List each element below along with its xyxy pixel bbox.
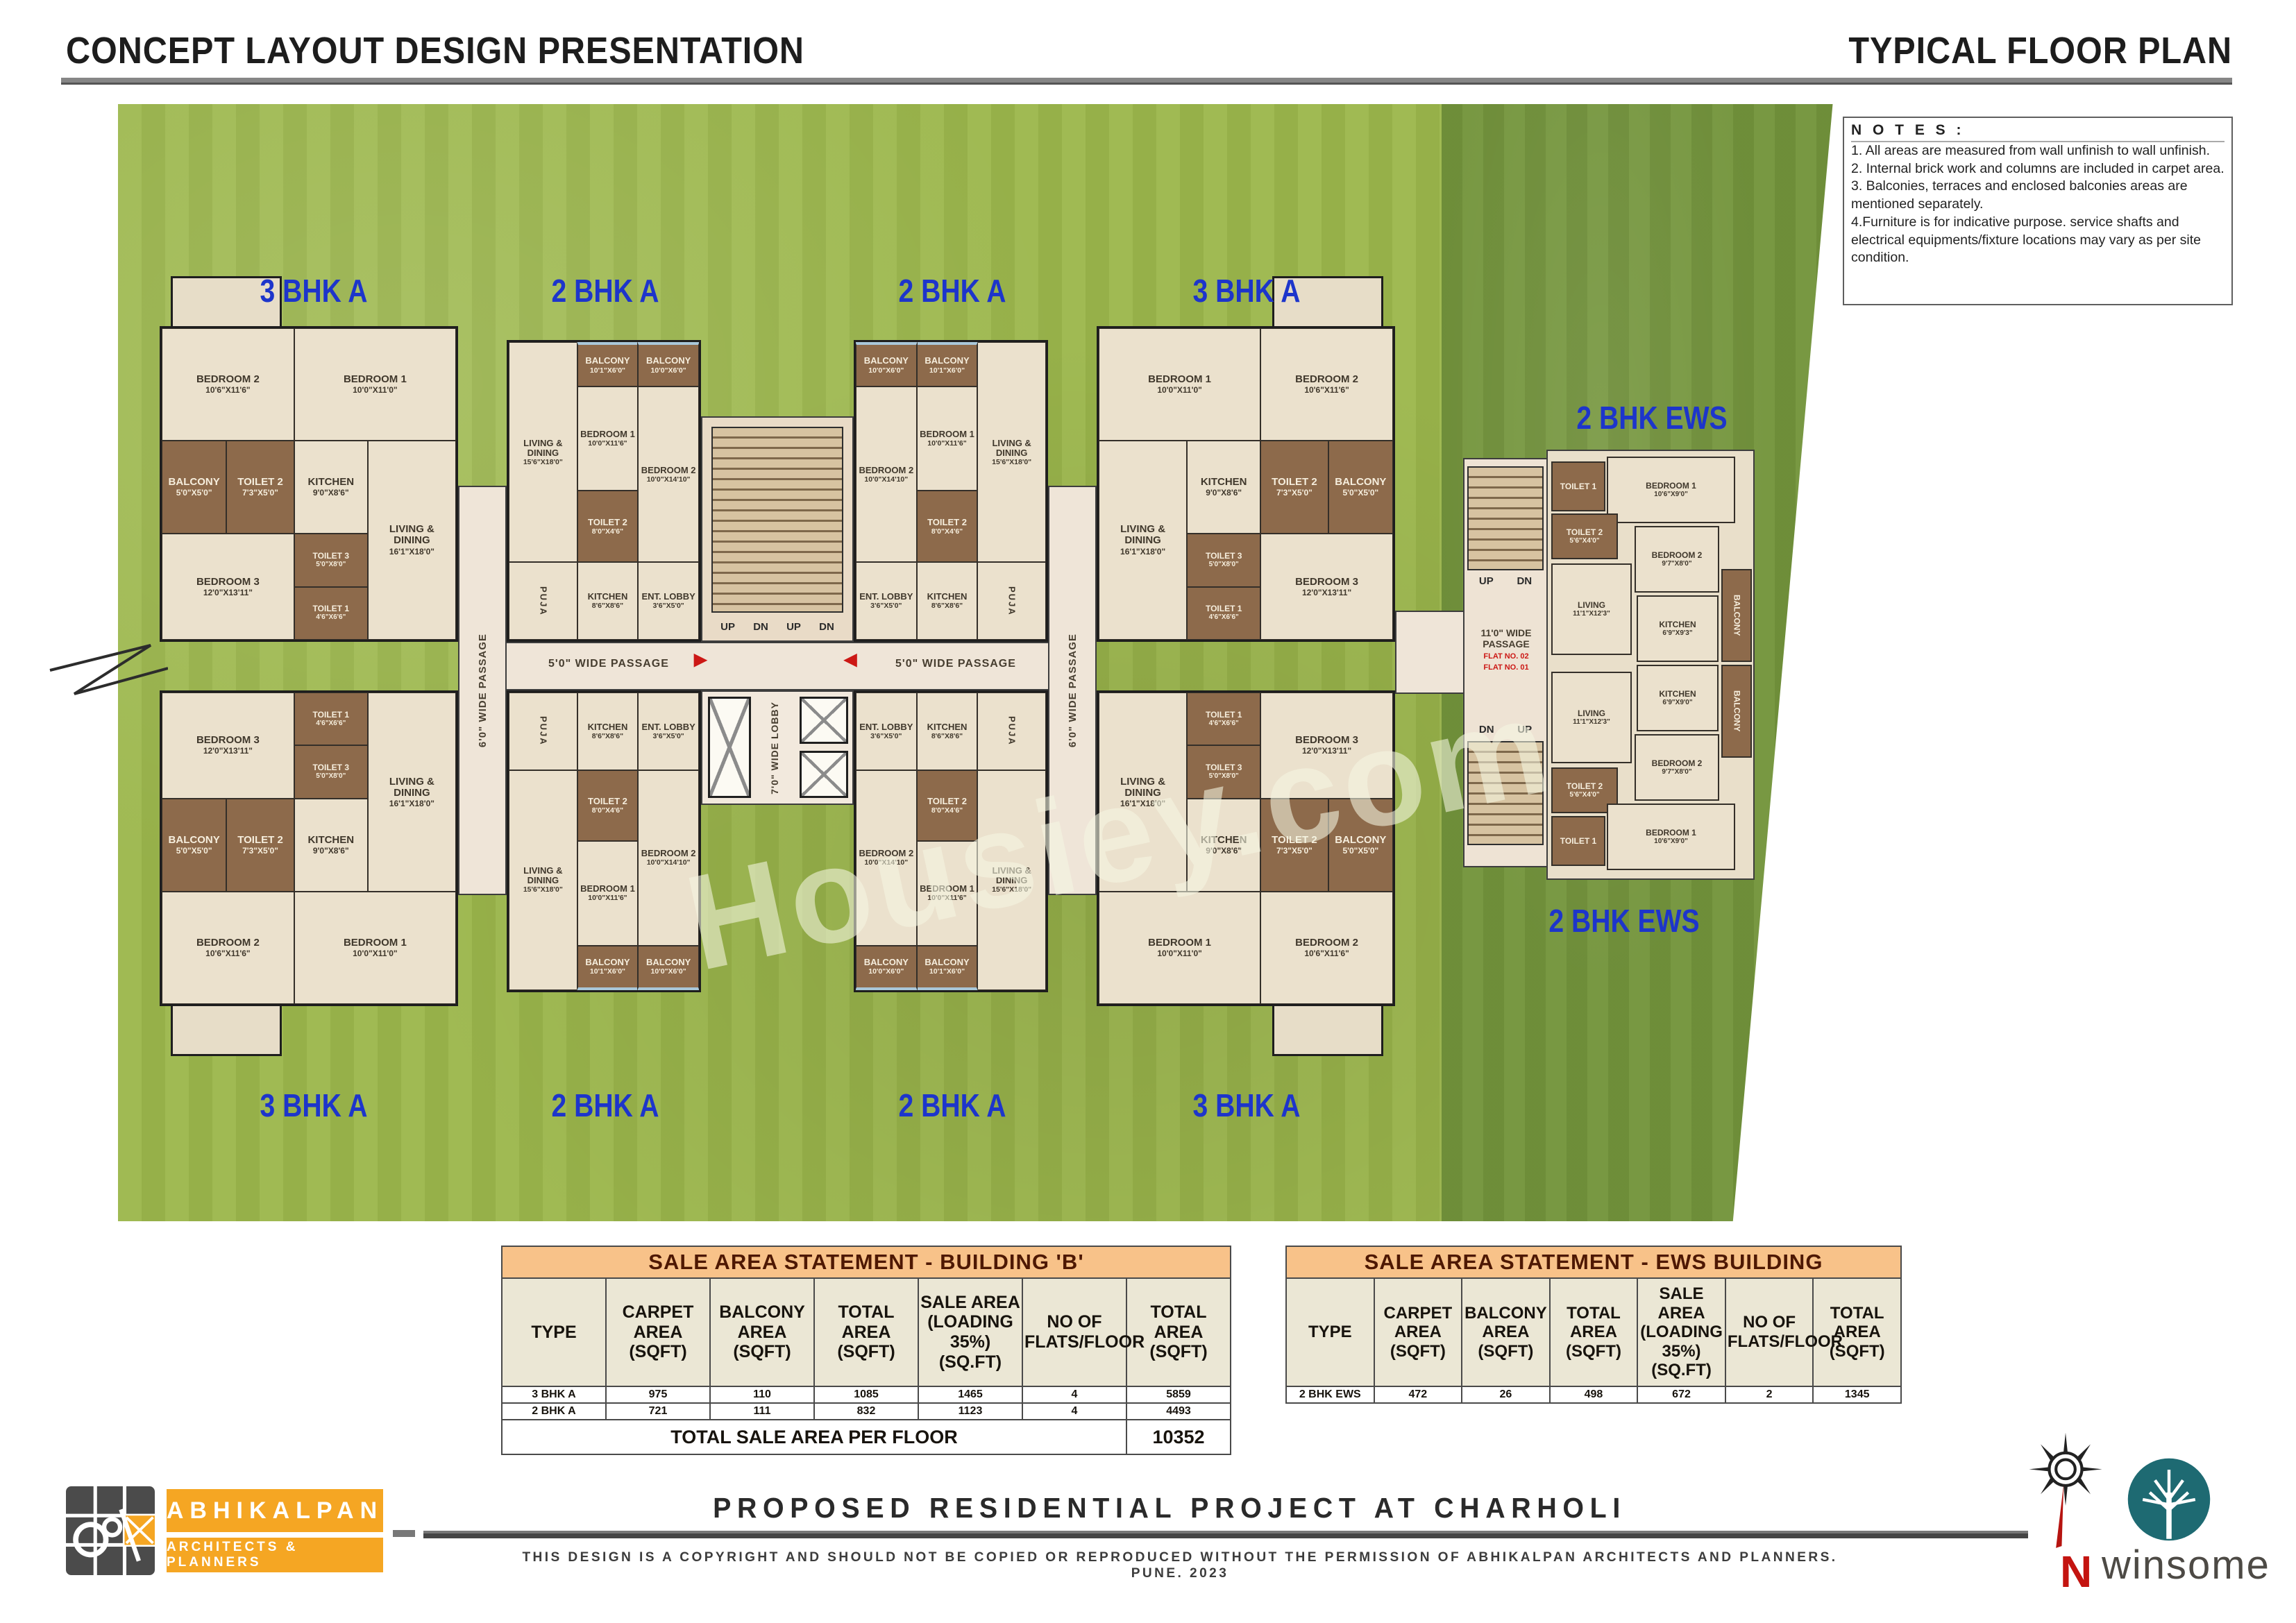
footer-dash <box>393 1530 415 1537</box>
room-label: KITCHEN <box>307 835 354 846</box>
sale-area-table-ews: SALE AREA STATEMENT - EWS BUILDINGTYPECA… <box>1285 1246 1902 1404</box>
room-label: BEDROOM 1 <box>580 430 635 439</box>
room-dimensions: 10'6"X11'6" <box>205 386 250 395</box>
page-title: CONCEPT LAYOUT DESIGN PRESENTATION <box>66 29 804 72</box>
room-dimensions: 8'6"X8'6" <box>931 602 963 610</box>
column-header: TYPE <box>502 1278 606 1386</box>
room-toil2: TOILET 27'3"X5'0" <box>1260 440 1329 535</box>
staircase <box>711 427 843 613</box>
room-label: BEDROOM 1 <box>344 937 407 949</box>
room-label: KITCHEN <box>1201 477 1247 488</box>
unit-type-label: 2 BHK A <box>899 272 1006 309</box>
room-ews-kitchen: KITCHEN6'9"X9'3" <box>1637 595 1719 662</box>
room-dimensions: 10'1"X6'0" <box>929 367 965 375</box>
room-balcB: BALCONY10'0"X6'0" <box>855 945 918 991</box>
room-toil1: TOILET 14'6"X6'6" <box>1186 692 1261 746</box>
unit-3bhk: BEDROOM 210'6"X11'6"BEDROOM 110'0"X11'0"… <box>160 326 458 642</box>
room-label: TOILET 2 <box>237 477 283 488</box>
room-dimensions: 16'1"X18'0" <box>389 547 434 556</box>
table-row: SALE AREA STATEMENT - BUILDING 'B' <box>502 1246 1231 1278</box>
room-label: BEDROOM 1 <box>1148 937 1211 949</box>
room-dimensions: 10'0"X6'0" <box>868 367 904 375</box>
stair-down-label: DN <box>1479 724 1494 736</box>
room-bed2: BEDROOM 210'0"X14'10" <box>855 386 918 563</box>
room-label: PUJA <box>538 586 548 616</box>
room-dimensions: 6'9"X9'0" <box>1662 699 1692 707</box>
sale-area-table: SALE AREA STATEMENT - BUILDING 'B'TYPECA… <box>501 1246 1231 1455</box>
lift-box <box>800 697 848 744</box>
room-ews-bedroom-1: BEDROOM 110'6"X9'0" <box>1607 804 1735 870</box>
room-label: ENT. LOBBY <box>859 722 913 732</box>
winsome-tree-icon <box>2125 1456 2213 1543</box>
room-dimensions: 5'0"X8'0" <box>1209 773 1239 781</box>
room-label: LIVING & DINING <box>979 439 1044 458</box>
room-label: KITCHEN <box>1201 835 1247 846</box>
room-dimensions: 9'7"X8'0" <box>1662 769 1691 776</box>
room-label: PUJA <box>1007 586 1017 616</box>
room-dimensions: 7'3"X5'0" <box>1276 847 1312 856</box>
room-bed2: BEDROOM 210'6"X11'6" <box>1260 891 1394 1005</box>
stair-up-label: UP <box>1479 575 1494 587</box>
room-kitch: KITCHEN8'6"X8'6" <box>577 561 639 640</box>
lift-box <box>800 751 848 798</box>
table-cell: 2 BHK A <box>502 1403 606 1420</box>
room-dimensions: 16'1"X18'0" <box>1120 799 1165 808</box>
unit-3bhk: BEDROOM 210'6"X11'6"BEDROOM 110'0"X11'0"… <box>160 690 458 1006</box>
room-kitch: KITCHEN8'6"X8'6" <box>577 692 639 771</box>
corner-bedroom-bump <box>1272 1002 1383 1056</box>
footer-divider <box>423 1531 2028 1538</box>
room-dimensions: 8'6"X8'6" <box>592 733 623 740</box>
room-bed3: BEDROOM 312'0"X13'11" <box>1260 692 1394 799</box>
unit-type-label: 3 BHK A <box>1193 272 1301 309</box>
room-dimensions: 9'7"X8'0" <box>1662 561 1691 568</box>
room-living: LIVING & DINING15'6"X18'0" <box>508 341 578 563</box>
column-header: BALCONY AREA (SQFT) <box>710 1278 814 1386</box>
room-puja: PUJA <box>508 692 578 771</box>
room-dimensions: 15'6"X18'0" <box>992 459 1031 466</box>
room-bed1: BEDROOM 110'0"X11'6" <box>577 840 639 946</box>
room-label: BALCONY <box>1732 595 1741 636</box>
room-bed2: BEDROOM 210'0"X14'10" <box>637 386 700 563</box>
room-toil1: TOILET 14'6"X6'6" <box>1186 586 1261 640</box>
room-label: LIVING & DINING <box>979 866 1044 885</box>
room-toil3: TOILET 35'0"X8'0" <box>294 533 369 587</box>
corner-bedroom-bump <box>171 1002 282 1056</box>
unit-3bhk: BEDROOM 210'6"X11'6"BEDROOM 110'0"X11'0"… <box>1097 690 1395 1006</box>
room-label: LIVING & DINING <box>1101 776 1185 799</box>
room-puja: PUJA <box>977 561 1047 640</box>
room-label: BALCONY <box>169 477 220 488</box>
room-label: TOILET 2 <box>927 797 967 806</box>
room-dimensions: 4'6"X6'6" <box>1209 614 1239 622</box>
room-label: TOILET 2 <box>1272 835 1317 846</box>
room-dimensions: 7'3"X5'0" <box>242 488 278 498</box>
architect-subtitle: ARCHITECTS & PLANNERS <box>167 1538 383 1572</box>
note-item: 3. Balconies, terraces and enclosed balc… <box>1851 178 2225 213</box>
architect-name: ABHIKALPAN <box>167 1489 383 1532</box>
ews-connector <box>1395 611 1467 694</box>
flat-number-label: FLAT NO. 02 <box>1483 652 1528 661</box>
notes-title: N O T E S : <box>1851 122 2225 142</box>
room-label: BEDROOM 2 <box>641 466 696 475</box>
room-label: LIVING & DINING <box>370 524 454 546</box>
room-label: ENT. LOBBY <box>641 592 695 602</box>
table-row: TOTAL SALE AREA PER FLOOR10352 <box>502 1420 1231 1454</box>
unit-type-label: 3 BHK A <box>1193 1087 1301 1124</box>
stair-up-label: UP <box>720 621 735 633</box>
room-label: ENT. LOBBY <box>641 722 695 732</box>
room-toil2: TOILET 27'3"X5'0" <box>1260 798 1329 893</box>
room-dimensions: 8'0"X4'6" <box>931 528 963 536</box>
room-bed1: BEDROOM 110'0"X11'6" <box>916 840 979 946</box>
table-cell: 4493 <box>1126 1403 1231 1420</box>
west-vertical-passage: 6'0" WIDE PASSAGE <box>458 486 507 895</box>
room-label: BEDROOM 2 <box>859 466 913 475</box>
brand-name: winsome <box>2102 1542 2270 1588</box>
room-label: LIVING & DINING <box>370 776 454 799</box>
table-row: 2 BHK EWS4722649867221345 <box>1286 1386 1901 1403</box>
room-toil2: TOILET 28'0"X4'6" <box>916 770 979 842</box>
room-balc: BALCONY5'0"X5'0" <box>161 440 227 535</box>
room-dimensions: 15'6"X18'0" <box>992 886 1031 894</box>
room-toil3: TOILET 35'0"X8'0" <box>1186 533 1261 587</box>
column-header: TOTAL AREA (SQFT) <box>814 1278 918 1386</box>
room-label: TOILET 2 <box>1567 782 1603 791</box>
room-label: KITCHEN <box>588 722 628 732</box>
notes-box: N O T E S : 1. All areas are measured fr… <box>1843 117 2233 305</box>
room-dimensions: 3'6"X5'0" <box>652 733 684 740</box>
room-label: TOILET 3 <box>1206 763 1242 772</box>
page: CONCEPT LAYOUT DESIGN PRESENTATION TYPIC… <box>0 0 2296 1623</box>
lift-box <box>708 697 751 798</box>
room-label: PUJA <box>538 716 548 746</box>
table-cell: 1465 <box>918 1386 1022 1403</box>
room-label: KITCHEN <box>1659 620 1696 629</box>
room-bed3: BEDROOM 312'0"X13'11" <box>161 533 295 640</box>
room-dimensions: 10'0"X11'0" <box>353 949 397 958</box>
header-divider <box>61 78 2232 85</box>
table-row: TYPECARPET AREA (SQFT)BALCONY AREA (SQFT… <box>1286 1278 1901 1386</box>
room-ews-bedroom-2: BEDROOM 29'7"X8'0" <box>1635 734 1719 801</box>
room-kitch: KITCHEN9'0"X8'6" <box>1186 440 1261 535</box>
room-balcA: BALCONY10'1"X6'0" <box>577 945 639 991</box>
room-dimensions: 6'9"X9'3" <box>1662 630 1692 638</box>
room-toil2: TOILET 28'0"X4'6" <box>577 770 639 842</box>
room-bed1: BEDROOM 110'0"X11'6" <box>577 386 639 491</box>
room-dimensions: 5'0"X8'0" <box>1209 561 1239 569</box>
room-bed1: BEDROOM 110'0"X11'0" <box>294 328 457 441</box>
room-label: TOILET 1 <box>1206 604 1242 613</box>
room-balcA: BALCONY10'1"X6'0" <box>577 341 639 387</box>
room-label: BEDROOM 2 <box>1295 937 1358 949</box>
room-dimensions: 10'1"X6'0" <box>590 968 625 976</box>
unit-type-label: 3 BHK A <box>260 1087 368 1124</box>
unit-2bhk: LIVING & DINING15'6"X18'0"BALCONY10'1"X6… <box>854 690 1048 992</box>
room-label: LIVING <box>1578 601 1605 610</box>
room-label: TOILET 3 <box>1206 552 1242 561</box>
room-dimensions: 3'6"X5'0" <box>870 733 902 740</box>
room-dimensions: 3'6"X5'0" <box>870 602 902 610</box>
sale-area-table: SALE AREA STATEMENT - EWS BUILDINGTYPECA… <box>1285 1246 1902 1404</box>
room-balcB: BALCONY10'0"X6'0" <box>855 341 918 387</box>
room-dimensions: 11'1"X12'3" <box>1573 719 1610 726</box>
ews-passage: 11'0" WIDE PASSAGE FLAT NO. 02 FLAT NO. … <box>1464 594 1548 705</box>
room-label: BALCONY <box>1335 477 1386 488</box>
room-label: BEDROOM 1 <box>580 884 635 894</box>
room-label: TOILET 1 <box>313 604 349 613</box>
room-dimensions: 12'0"X13'11" <box>203 747 253 756</box>
room-living: LIVING & DINING15'6"X18'0" <box>977 341 1047 563</box>
room-dimensions: 9'0"X8'6" <box>1206 847 1242 856</box>
table-row: 2 BHK A721111832112344493 <box>502 1403 1231 1420</box>
room-label: KITCHEN <box>927 722 968 732</box>
room-ews-balcony: BALCONY <box>1721 569 1752 662</box>
room-ews-toilet-1: TOILET 1 <box>1551 461 1605 511</box>
room-dimensions: 16'1"X18'0" <box>389 799 434 808</box>
sheet-title: TYPICAL FLOOR PLAN <box>1848 29 2232 72</box>
unit-type-label: 2 BHK A <box>552 1087 659 1124</box>
room-dimensions: 4'6"X6'6" <box>316 614 346 622</box>
site-entry-marker-icon <box>36 637 168 720</box>
room-label: KITCHEN <box>1659 690 1696 699</box>
room-balcA: BALCONY10'1"X6'0" <box>916 945 979 991</box>
note-item: 4.Furniture is for indicative purpose. s… <box>1851 214 2225 267</box>
room-kitch: KITCHEN8'6"X8'6" <box>916 561 979 640</box>
room-puja: PUJA <box>508 561 578 640</box>
room-dimensions: 3'6"X5'0" <box>652 602 684 610</box>
room-dimensions: 12'0"X13'11" <box>1302 588 1351 597</box>
room-toil2: TOILET 28'0"X4'6" <box>916 490 979 563</box>
ews-passage-label: 11'0" WIDE PASSAGE <box>1464 627 1548 649</box>
table-cell: 5859 <box>1126 1386 1231 1403</box>
room-label: BALCONY <box>1335 835 1386 846</box>
room-label: BEDROOM 2 <box>641 849 696 858</box>
column-header: CARPET AREA (SQFT) <box>1374 1278 1462 1386</box>
room-balcA: BALCONY10'1"X6'0" <box>916 341 979 387</box>
room-label: KITCHEN <box>588 592 628 602</box>
room-label: TOILET 3 <box>313 552 349 561</box>
room-label: KITCHEN <box>927 592 968 602</box>
room-ews-bedroom-1: BEDROOM 110'6"X9'0" <box>1607 457 1735 523</box>
room-label: BEDROOM 2 <box>196 937 260 949</box>
room-dimensions: 8'6"X8'6" <box>931 733 963 740</box>
room-puja: PUJA <box>977 692 1047 771</box>
room-dimensions: 15'6"X18'0" <box>523 459 563 466</box>
room-toil1: TOILET 14'6"X6'6" <box>294 586 369 640</box>
room-ent: ENT. LOBBY3'6"X5'0" <box>637 561 700 640</box>
room-bed2: BEDROOM 210'0"X14'10" <box>637 770 700 946</box>
room-ews-bedroom-2: BEDROOM 29'7"X8'0" <box>1635 526 1719 593</box>
compass-icon <box>2017 1431 2114 1556</box>
room-dimensions: 10'0"X11'6" <box>927 440 966 448</box>
room-balc: BALCONY5'0"X5'0" <box>1328 440 1394 535</box>
room-label: BALCONY <box>585 356 630 366</box>
room-dimensions: 10'0"X11'0" <box>1157 386 1201 395</box>
room-balc: BALCONY5'0"X5'0" <box>161 798 227 893</box>
room-label: BEDROOM 1 <box>344 374 407 385</box>
room-dimensions: 5'6"X4'0" <box>1569 538 1599 545</box>
room-dimensions: 10'6"X11'6" <box>1304 949 1349 958</box>
table-cell: 672 <box>1637 1386 1725 1403</box>
room-label: BALCONY <box>169 835 220 846</box>
room-label: BALCONY <box>646 356 691 366</box>
room-dimensions: 10'6"X9'0" <box>1654 838 1688 846</box>
table-row: 3 BHK A9751101085146545859 <box>502 1386 1231 1403</box>
room-dimensions: 12'0"X13'11" <box>203 588 253 597</box>
room-dimensions: 7'3"X5'0" <box>1276 488 1312 498</box>
room-ent: ENT. LOBBY3'6"X5'0" <box>637 692 700 771</box>
room-ews-toilet-2: TOILET 25'6"X4'0" <box>1551 513 1618 559</box>
table-cell: 1345 <box>1813 1386 1901 1403</box>
room-ews-toilet-1: TOILET 1 <box>1551 816 1605 866</box>
note-item: 2. Internal brick work and columns are i… <box>1851 160 2225 178</box>
passage-label: 6'0" WIDE PASSAGE <box>1067 634 1079 747</box>
room-label: LIVING & DINING <box>511 439 575 458</box>
room-dimensions: 10'6"X11'6" <box>1304 386 1349 395</box>
lobby-label: 7'0" WIDE LOBBY <box>769 702 780 794</box>
room-ent: ENT. LOBBY3'6"X5'0" <box>855 692 918 771</box>
room-label: LIVING & DINING <box>511 866 575 885</box>
room-dimensions: 5'0"X5'0" <box>1342 488 1378 498</box>
room-label: BEDROOM 3 <box>1295 577 1358 588</box>
stair-up-label: UP <box>786 621 801 633</box>
room-label: BEDROOM 3 <box>196 577 260 588</box>
room-label: BALCONY <box>585 958 630 967</box>
room-label: LIVING & DINING <box>1101 524 1185 546</box>
copyright-text: THIS DESIGN IS A COPYRIGHT AND SHOULD NO… <box>500 1549 1860 1581</box>
room-label: TOILET 2 <box>927 518 967 527</box>
room-dimensions: 5'6"X4'0" <box>1569 792 1599 799</box>
room-dimensions: 15'6"X18'0" <box>523 886 563 894</box>
table-cell: 111 <box>710 1403 814 1420</box>
room-label: BEDROOM 2 <box>859 849 913 858</box>
room-dimensions: 12'0"X13'11" <box>1302 747 1351 756</box>
room-label: KITCHEN <box>307 477 354 488</box>
total-value: 10352 <box>1126 1420 1231 1454</box>
room-dimensions: 10'0"X6'0" <box>651 968 686 976</box>
room-bed1: BEDROOM 110'0"X11'0" <box>1098 328 1261 441</box>
unit-2bhk: LIVING & DINING15'6"X18'0"BALCONY10'1"X6… <box>507 340 701 642</box>
room-label: TOILET 3 <box>313 763 349 772</box>
column-header: BALCONY AREA (SQFT) <box>1462 1278 1550 1386</box>
room-dimensions: 8'6"X8'6" <box>592 602 623 610</box>
table-row: TYPECARPET AREA (SQFT)BALCONY AREA (SQFT… <box>502 1278 1231 1386</box>
column-header: NO OF FLATS/FLOOR <box>1725 1278 1814 1386</box>
table-cell: 2 BHK EWS <box>1286 1386 1374 1403</box>
room-bed2: BEDROOM 210'6"X11'6" <box>1260 328 1394 441</box>
ews-staircase <box>1467 741 1544 845</box>
room-dimensions: 10'0"X11'0" <box>353 386 397 395</box>
room-dimensions: 10'0"X6'0" <box>868 968 904 976</box>
room-living: LIVING & DINING16'1"X18'0" <box>1098 692 1188 892</box>
room-label: TOILET 1 <box>313 711 349 720</box>
total-label: TOTAL SALE AREA PER FLOOR <box>502 1420 1126 1454</box>
room-label: BALCONY <box>925 356 969 366</box>
passage-label: 5'0" WIDE PASSAGE <box>548 658 669 670</box>
stair-up-label: UP <box>1517 724 1532 736</box>
room-label: BEDROOM 1 <box>920 430 974 439</box>
room-label: PUJA <box>1007 716 1017 746</box>
column-header: SALE AREA (LOADING 35%) (SQ.FT) <box>918 1278 1022 1386</box>
room-balcB: BALCONY10'0"X6'0" <box>637 341 700 387</box>
stair-down-label: DN <box>1517 575 1532 587</box>
room-balcB: BALCONY10'0"X6'0" <box>637 945 700 991</box>
table-cell: 498 <box>1550 1386 1638 1403</box>
room-label: TOILET 2 <box>588 518 627 527</box>
column-header: TYPE <box>1286 1278 1374 1386</box>
project-title: PROPOSED RESIDENTIAL PROJECT AT CHARHOLI <box>503 1492 1836 1524</box>
sale-area-table-building-b: SALE AREA STATEMENT - BUILDING 'B'TYPECA… <box>501 1246 1231 1455</box>
north-label: N <box>2060 1546 2092 1597</box>
room-dimensions: 8'0"X4'6" <box>592 528 623 536</box>
stair-direction-labels: UP DN UP DN <box>711 616 843 637</box>
room-dimensions: 10'0"X11'0" <box>1157 949 1201 958</box>
table-cell: 832 <box>814 1403 918 1420</box>
table-title: SALE AREA STATEMENT - BUILDING 'B' <box>502 1246 1231 1278</box>
table-cell: 26 <box>1462 1386 1550 1403</box>
east-vertical-passage: 6'0" WIDE PASSAGE <box>1048 486 1097 895</box>
room-label: BALCONY <box>864 958 909 967</box>
room-dimensions: 10'0"X14'10" <box>864 476 908 484</box>
room-bed1: BEDROOM 110'0"X11'6" <box>916 386 979 491</box>
room-dimensions: 10'0"X6'0" <box>651 367 686 375</box>
room-dimensions: 4'6"X6'6" <box>316 720 346 728</box>
table-cell: 4 <box>1022 1386 1126 1403</box>
room-dimensions: 10'0"X11'6" <box>588 894 627 902</box>
room-label: BEDROOM 1 <box>920 884 974 894</box>
room-ews-living: LIVING11'1"X12'3" <box>1551 672 1632 763</box>
column-header: NO OF FLATS/FLOOR <box>1022 1278 1126 1386</box>
stair-down-label: DN <box>753 621 768 633</box>
room-dimensions: 8'0"X4'6" <box>931 807 963 815</box>
table-cell: 472 <box>1374 1386 1462 1403</box>
room-dimensions: 5'0"X5'0" <box>1342 847 1378 856</box>
room-kitch: KITCHEN8'6"X8'6" <box>916 692 979 771</box>
room-dimensions: 9'0"X8'6" <box>313 847 349 856</box>
room-dimensions: 9'0"X8'6" <box>313 488 349 498</box>
room-dimensions: 5'0"X5'0" <box>176 847 212 856</box>
room-dimensions: 7'3"X5'0" <box>242 847 278 856</box>
ews-stair-labels: UP DN <box>1467 572 1544 590</box>
room-bed1: BEDROOM 110'0"X11'0" <box>294 891 457 1005</box>
room-bed1: BEDROOM 110'0"X11'0" <box>1098 891 1261 1005</box>
room-label: TOILET 1 <box>1206 711 1242 720</box>
table-cell: 110 <box>710 1386 814 1403</box>
room-living: LIVING & DINING16'1"X18'0" <box>1098 440 1188 640</box>
room-living: LIVING & DINING15'6"X18'0" <box>508 770 578 991</box>
passage-label: 6'0" WIDE PASSAGE <box>477 634 489 747</box>
ews-type-label: 2 BHK EWS <box>1576 399 1727 436</box>
room-label: TOILET 1 <box>1560 837 1596 846</box>
room-label: BEDROOM 3 <box>196 735 260 746</box>
flat-entry-arrow-icon: ▶ <box>694 649 707 670</box>
room-living: LIVING & DINING16'1"X18'0" <box>367 692 457 892</box>
room-balc: BALCONY5'0"X5'0" <box>1328 798 1394 893</box>
room-dimensions: 10'0"X14'10" <box>647 476 691 484</box>
room-label: BEDROOM 2 <box>1652 551 1703 560</box>
table-title: SALE AREA STATEMENT - EWS BUILDING <box>1286 1246 1901 1278</box>
table-cell: 1123 <box>918 1403 1022 1420</box>
note-item: 1. All areas are measured from wall unfi… <box>1851 142 2225 160</box>
room-label: TOILET 2 <box>1567 528 1603 537</box>
room-label: BEDROOM 1 <box>1646 482 1696 491</box>
room-bed3: BEDROOM 312'0"X13'11" <box>1260 533 1394 640</box>
room-dimensions: 10'1"X6'0" <box>590 367 625 375</box>
room-dimensions: 4'6"X6'6" <box>1209 720 1239 728</box>
room-dimensions: 10'0"X11'6" <box>927 894 966 902</box>
room-dimensions: 10'6"X11'6" <box>205 949 250 958</box>
